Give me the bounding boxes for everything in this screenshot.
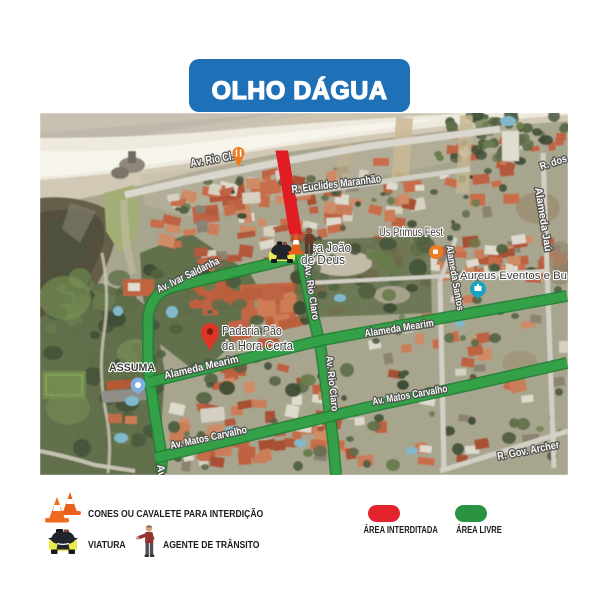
svg-text:Aureus Eventos e Bu: Aureus Eventos e Bu bbox=[460, 270, 567, 282]
svg-text:de Deus: de Deus bbox=[301, 252, 345, 267]
svg-text:Padaria Pão: Padaria Pão bbox=[222, 324, 282, 338]
svg-text:ASSUMA: ASSUMA bbox=[109, 362, 155, 374]
svg-text:Av.: Av. bbox=[154, 464, 168, 475]
svg-text:da Hora Certa: da Hora Certa bbox=[222, 339, 293, 353]
svg-text:Us Primus Fest: Us Primus Fest bbox=[379, 227, 444, 239]
